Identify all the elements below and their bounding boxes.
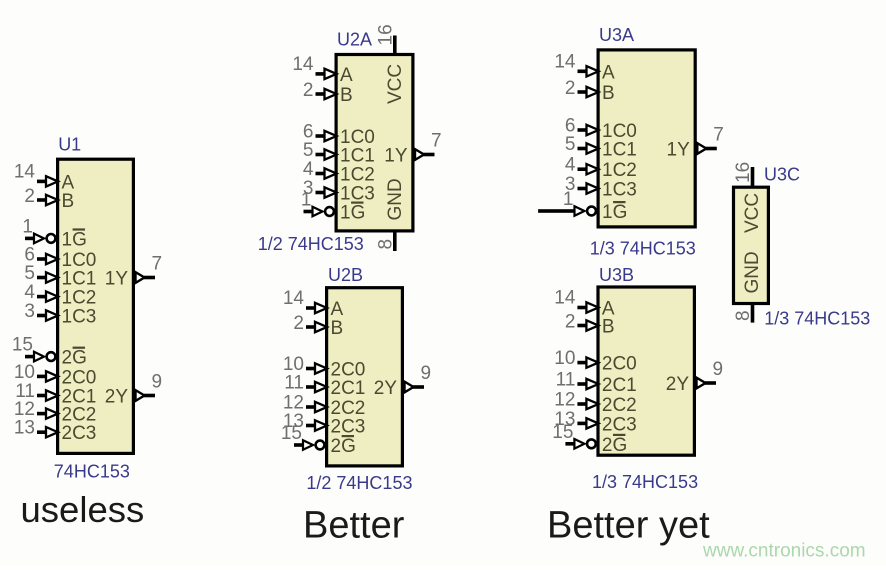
- svg-text:useless: useless: [21, 489, 145, 530]
- svg-text:GND: GND: [742, 251, 763, 293]
- svg-text:www.cntronics.com: www.cntronics.com: [702, 541, 866, 562]
- svg-text:5: 5: [303, 140, 314, 161]
- svg-text:8: 8: [375, 239, 396, 250]
- svg-text:A: A: [340, 65, 353, 86]
- svg-text:2G: 2G: [331, 436, 356, 457]
- svg-text:8: 8: [733, 310, 754, 321]
- svg-text:U2B: U2B: [328, 265, 363, 285]
- svg-text:B: B: [62, 191, 75, 212]
- svg-text:2G: 2G: [602, 435, 627, 456]
- svg-text:16: 16: [375, 24, 396, 45]
- svg-text:1/3 74HC153: 1/3 74HC153: [764, 308, 870, 328]
- svg-text:2Y: 2Y: [374, 378, 398, 399]
- svg-text:2C1: 2C1: [602, 375, 637, 396]
- svg-text:2C0: 2C0: [602, 354, 637, 375]
- svg-text:74HC153: 74HC153: [54, 462, 130, 482]
- svg-text:4: 4: [565, 155, 576, 176]
- svg-text:1C3: 1C3: [602, 180, 637, 201]
- svg-text:1G: 1G: [602, 202, 627, 223]
- svg-text:1C2: 1C2: [62, 288, 97, 309]
- svg-text:1C1: 1C1: [602, 140, 637, 161]
- svg-text:14: 14: [14, 161, 36, 182]
- svg-text:1G: 1G: [340, 203, 365, 224]
- svg-text:GND: GND: [385, 178, 406, 220]
- svg-text:13: 13: [14, 418, 35, 439]
- svg-text:2C3: 2C3: [62, 423, 97, 444]
- svg-text:5: 5: [24, 263, 35, 284]
- svg-text:Better yet: Better yet: [547, 505, 710, 547]
- svg-text:U3C: U3C: [764, 165, 800, 185]
- svg-text:2: 2: [303, 80, 314, 101]
- svg-text:11: 11: [284, 373, 304, 394]
- svg-text:U2A: U2A: [337, 30, 372, 50]
- svg-text:1Y: 1Y: [384, 146, 408, 167]
- svg-text:16: 16: [733, 162, 754, 183]
- svg-text:15: 15: [552, 422, 573, 443]
- svg-text:B: B: [340, 85, 353, 106]
- svg-text:2C3: 2C3: [331, 417, 366, 438]
- svg-text:11: 11: [556, 370, 576, 391]
- svg-text:A: A: [331, 299, 344, 320]
- svg-text:2C2: 2C2: [602, 395, 637, 416]
- svg-text:1: 1: [563, 189, 574, 210]
- svg-text:10: 10: [554, 348, 575, 369]
- svg-text:1C2: 1C2: [602, 160, 637, 181]
- svg-text:2: 2: [565, 312, 576, 333]
- svg-text:B: B: [602, 83, 615, 104]
- svg-text:7: 7: [713, 125, 724, 146]
- svg-text:14: 14: [554, 288, 576, 309]
- svg-text:1G: 1G: [62, 229, 87, 250]
- svg-text:4: 4: [24, 282, 35, 303]
- svg-text:15: 15: [12, 335, 33, 356]
- svg-text:1C1: 1C1: [340, 146, 375, 167]
- svg-text:1/3 74HC153: 1/3 74HC153: [592, 472, 698, 492]
- svg-text:VCC: VCC: [742, 193, 763, 233]
- svg-text:1/2 74HC153: 1/2 74HC153: [258, 234, 364, 254]
- svg-text:7: 7: [431, 131, 442, 152]
- svg-text:1Y: 1Y: [105, 269, 129, 290]
- svg-text:9: 9: [152, 372, 163, 393]
- svg-text:3: 3: [24, 301, 35, 322]
- svg-text:2: 2: [24, 186, 35, 207]
- svg-text:1Y: 1Y: [667, 140, 691, 161]
- svg-text:B: B: [331, 318, 344, 339]
- svg-text:2C3: 2C3: [602, 414, 637, 435]
- svg-text:2C0: 2C0: [62, 367, 97, 388]
- svg-text:1C1: 1C1: [62, 269, 97, 290]
- svg-text:2C1: 2C1: [331, 378, 366, 399]
- svg-text:5: 5: [565, 134, 576, 155]
- svg-text:B: B: [602, 317, 615, 338]
- svg-text:2G: 2G: [62, 348, 87, 369]
- svg-text:2Y: 2Y: [666, 374, 690, 395]
- svg-text:1: 1: [22, 216, 33, 237]
- svg-text:U3A: U3A: [599, 25, 634, 45]
- svg-text:4: 4: [303, 159, 314, 180]
- svg-text:14: 14: [283, 288, 305, 309]
- svg-text:1C3: 1C3: [340, 184, 375, 205]
- svg-text:12: 12: [554, 390, 575, 411]
- svg-text:VCC: VCC: [385, 64, 406, 104]
- svg-text:1C2: 1C2: [340, 165, 375, 186]
- svg-text:1/3 74HC153: 1/3 74HC153: [590, 238, 696, 258]
- svg-text:1: 1: [301, 190, 312, 211]
- svg-text:U1: U1: [58, 135, 81, 155]
- svg-text:2Y: 2Y: [105, 387, 129, 408]
- svg-text:14: 14: [554, 51, 576, 72]
- svg-text:1C3: 1C3: [62, 307, 97, 328]
- svg-text:7: 7: [152, 254, 163, 275]
- svg-text:14: 14: [292, 54, 314, 75]
- svg-text:A: A: [602, 62, 615, 83]
- svg-text:9: 9: [713, 359, 724, 380]
- svg-text:U3B: U3B: [599, 265, 634, 285]
- svg-text:10: 10: [14, 362, 35, 383]
- svg-text:9: 9: [421, 363, 432, 384]
- svg-text:1/2 74HC153: 1/2 74HC153: [306, 473, 412, 493]
- svg-text:2: 2: [565, 78, 576, 99]
- svg-text:Better: Better: [303, 505, 405, 547]
- svg-text:15: 15: [281, 423, 302, 444]
- svg-text:2: 2: [293, 313, 304, 334]
